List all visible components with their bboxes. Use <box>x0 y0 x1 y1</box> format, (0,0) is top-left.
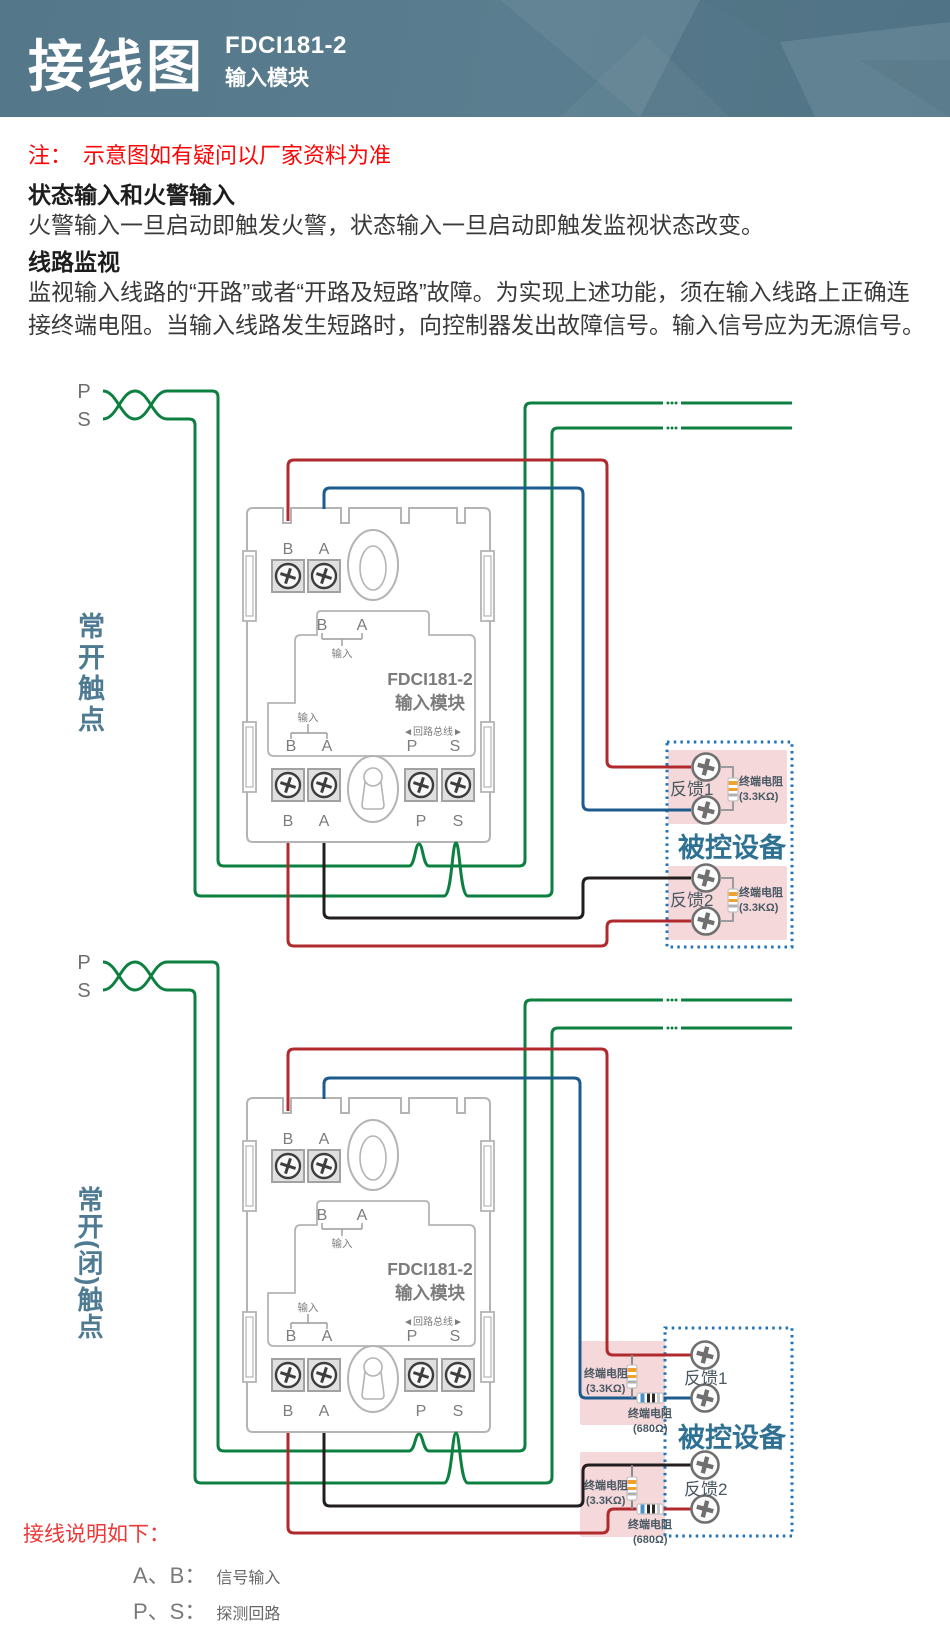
terminal-resistor-value-680-2: (680Ω) <box>633 1534 668 1546</box>
feedback2-label-2: 反馈2 <box>684 1480 727 1499</box>
feedback2-label: 反馈2 <box>670 891 713 910</box>
page-title: 接线图 <box>28 22 205 103</box>
terminal-resistor-value-2: (3.3KΩ) <box>739 902 779 914</box>
controlled-device-title: 被控设备 <box>678 833 787 863</box>
legend-row-ps: P、S： 探测回路 <box>133 1594 280 1626</box>
header-banner: 接线图 FDCI181-2 输入模块 <box>0 0 950 117</box>
module-model-code: FDCI181-2 <box>225 32 347 60</box>
loop-label-s-2: S <box>77 980 90 1002</box>
terminal-resistor-value-4: (3.3KΩ) <box>586 1495 626 1507</box>
terminal-resistor-value-1: (3.3KΩ) <box>739 791 779 803</box>
terminal-resistor-label-2: 终端电阻 <box>739 885 783 899</box>
page: 接线图 FDCI181-2 输入模块 注： 示意图如有疑问以厂家资料为准 状态输… <box>0 0 950 1629</box>
legend-row-ab: A、B： 信号输入 <box>133 1558 280 1590</box>
paragraph-monitor: 监视输入线路的“开路”或者“开路及短路”故障。为实现上述功能，须在输入线路上正确… <box>28 276 928 342</box>
module-type-label: 输入模块 <box>225 62 309 92</box>
wire-break-dots-2 <box>667 999 678 1030</box>
terminal-resistor-label-680-1: 终端电阻 <box>628 1406 672 1420</box>
feedback1-label-2: 反馈1 <box>684 1369 727 1388</box>
terminal-resistor-value-680-1: (680Ω) <box>633 1423 668 1435</box>
terminal-resistor-label-680-2: 终端电阻 <box>628 1517 672 1531</box>
section-heading-inputs: 状态输入和火警输入 <box>28 176 235 210</box>
warning-note: 注： 示意图如有疑问以厂家资料为准 <box>28 138 391 170</box>
terminal-resistor-value-3: (3.3KΩ) <box>586 1383 626 1395</box>
wiring-diagram-normally-open: B A B A 输入 FDCI181-2 输入模块 输入 <box>0 370 950 965</box>
loop-label-s: S <box>77 409 90 431</box>
section-heading-monitor: 线路监视 <box>28 243 120 277</box>
terminal-resistor-label-3: 终端电阻 <box>584 1366 628 1380</box>
feedback1-label: 反馈1 <box>670 780 713 799</box>
legend-term-ab: A、B： <box>133 1558 206 1590</box>
contact-type-label-1: 常开触点 <box>70 612 109 736</box>
controlled-device-title-2: 被控设备 <box>678 1423 787 1453</box>
loop-label-p-2: P <box>77 952 90 974</box>
loop-label-p: P <box>77 381 90 403</box>
legend-title: 接线说明如下： <box>23 1518 170 1548</box>
contact-type-label-2: 常开(闭)触点 <box>71 1186 108 1340</box>
wire-a-bottom-to-feedback2 <box>324 843 691 918</box>
legend-desc-ps: 探测回路 <box>216 1600 280 1624</box>
wire-break-dots <box>667 402 678 430</box>
paragraph-inputs: 火警输入一旦启动即触发火警，状态输入一旦启动即触发监视状态改变。 <box>28 209 928 242</box>
legend-desc-ab: 信号输入 <box>216 1564 280 1588</box>
legend-term-ps: P、S： <box>133 1594 206 1626</box>
terminal-resistor-label-1: 终端电阻 <box>739 774 783 788</box>
terminal-resistor-label-4: 终端电阻 <box>584 1478 628 1492</box>
